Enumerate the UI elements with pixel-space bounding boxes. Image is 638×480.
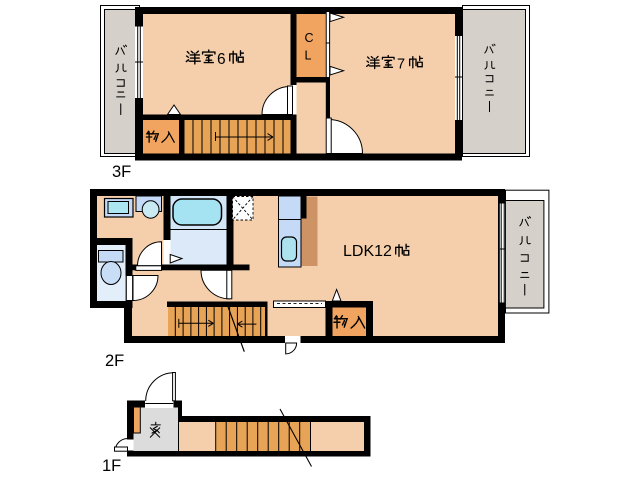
svg-text:C: C [305, 31, 314, 45]
svg-text:L: L [305, 49, 312, 63]
svg-text:6: 6 [217, 51, 226, 68]
svg-text:1F: 1F [102, 457, 121, 475]
svg-text:3F: 3F [112, 163, 131, 181]
svg-text:7: 7 [397, 57, 405, 73]
svg-text:2F: 2F [105, 352, 124, 370]
svg-text:LDK12: LDK12 [343, 243, 392, 260]
